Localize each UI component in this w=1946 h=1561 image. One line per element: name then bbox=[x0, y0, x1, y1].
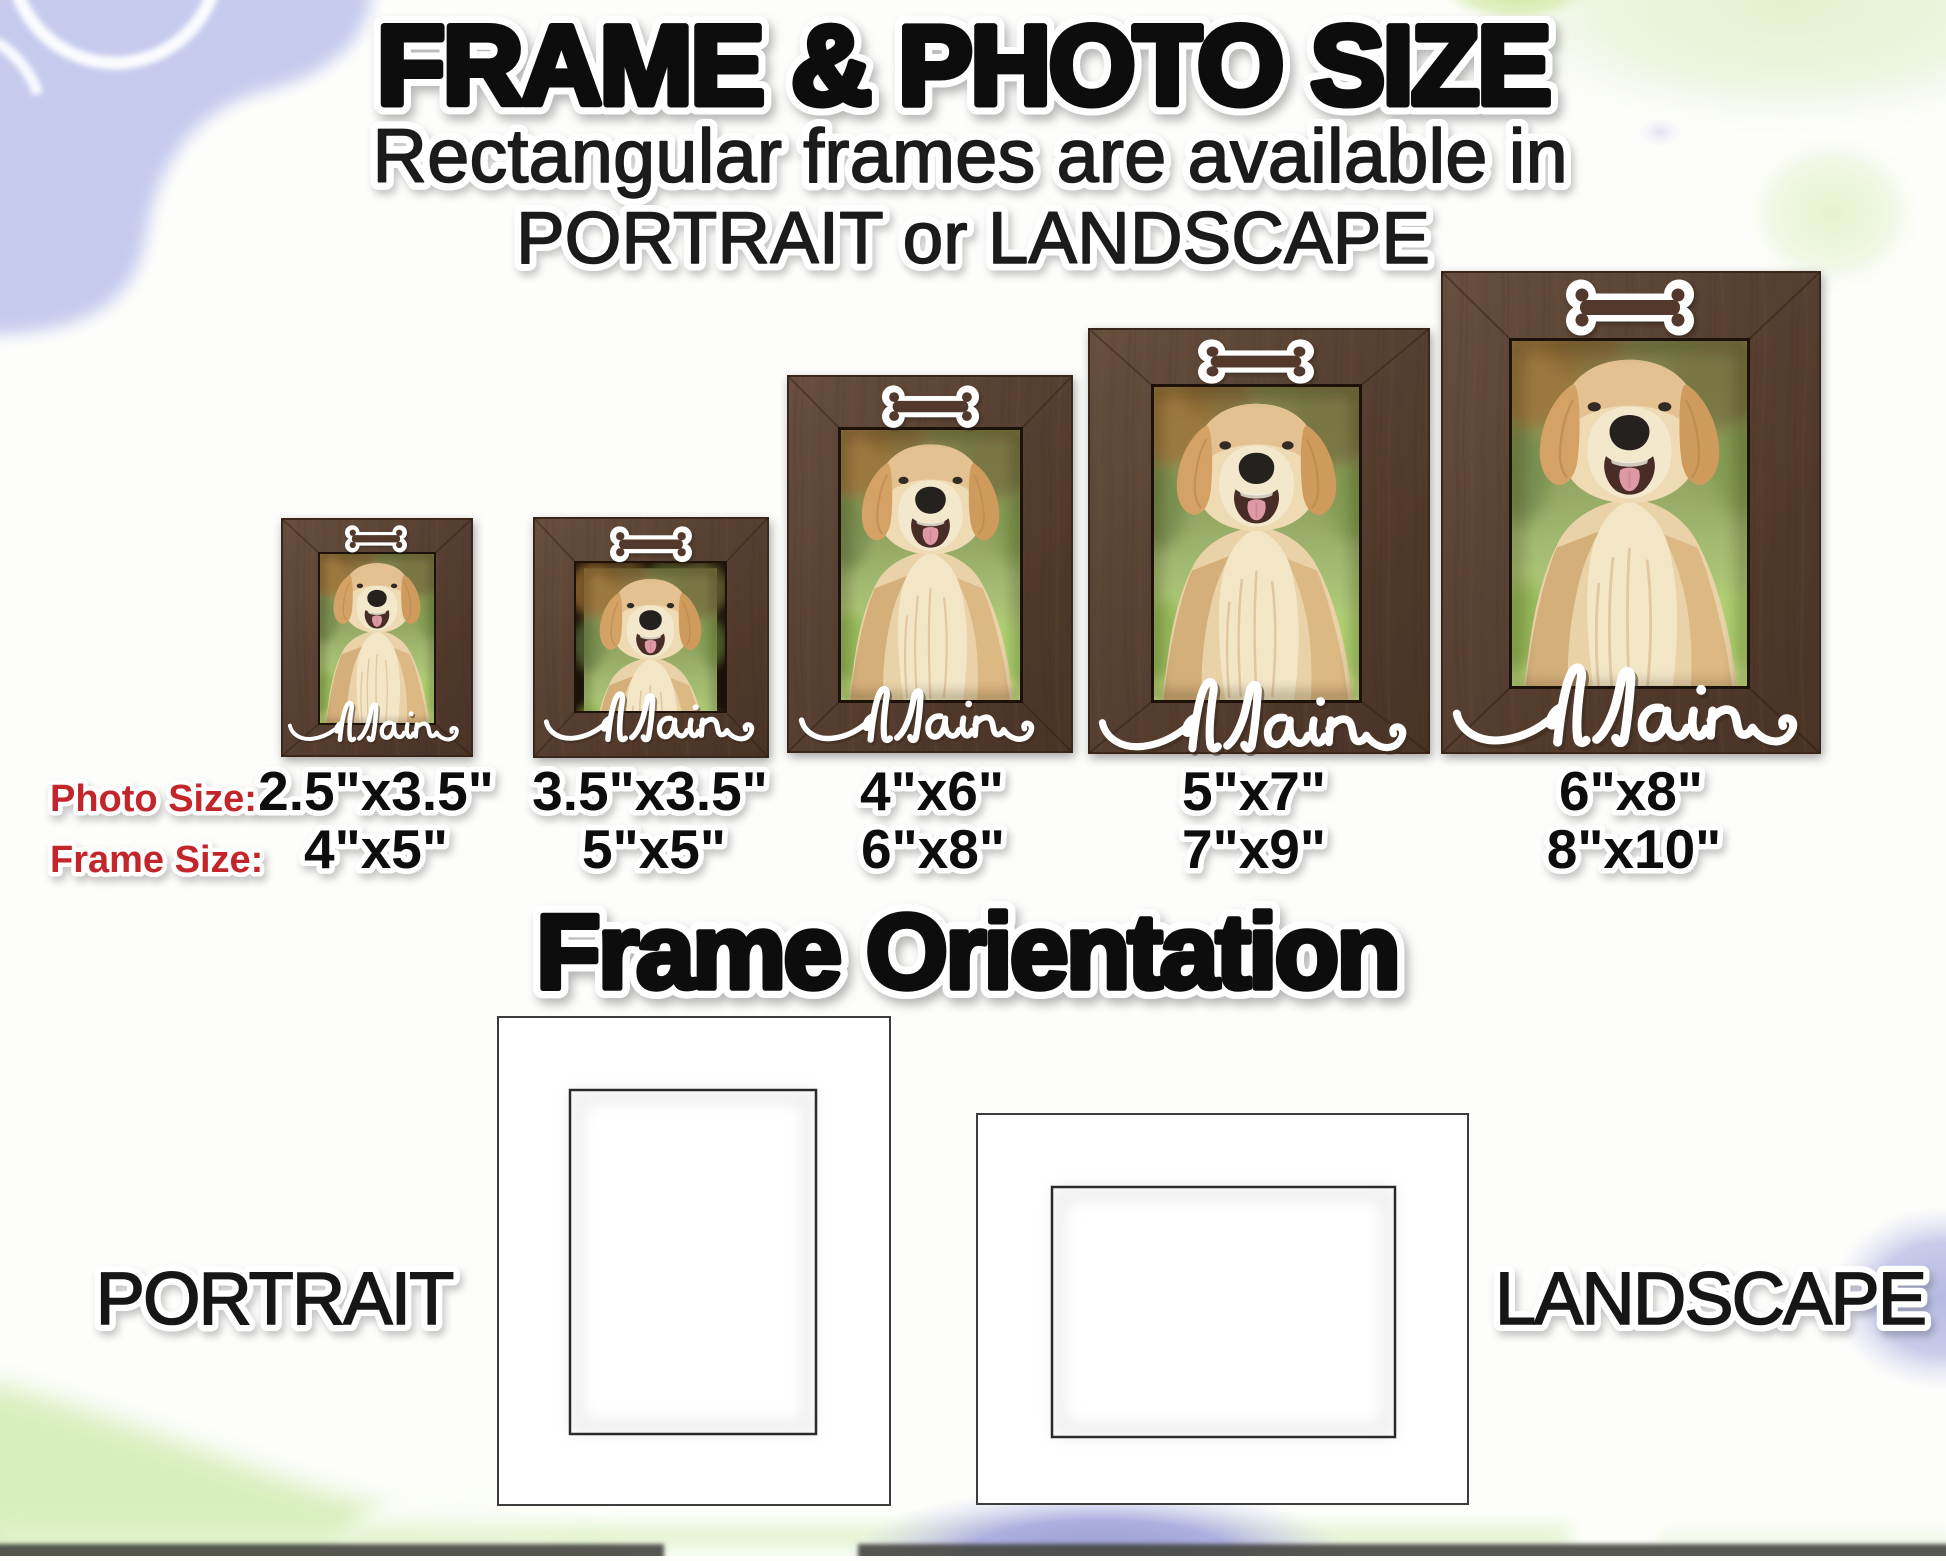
svg-text:LANDSCAPE: LANDSCAPE bbox=[1495, 1257, 1925, 1340]
svg-text:2.5"x3.5": 2.5"x3.5" bbox=[258, 760, 494, 822]
svg-text:PORTRAIT: PORTRAIT bbox=[96, 1257, 454, 1340]
svg-text:Rectangular frames are availab: Rectangular frames are available in bbox=[372, 114, 1568, 199]
svg-text:5"x7": 5"x7" bbox=[1182, 760, 1326, 822]
svg-text:8"x10": 8"x10" bbox=[1547, 818, 1722, 880]
svg-text:PORTRAIT or LANDSCAPE: PORTRAIT or LANDSCAPE bbox=[516, 198, 1430, 279]
svg-text:Frame Orientation: Frame Orientation bbox=[536, 893, 1398, 1011]
svg-text:4"x6": 4"x6" bbox=[860, 760, 1004, 822]
svg-text:Frame Size:: Frame Size: bbox=[50, 839, 263, 881]
svg-text:7"x9": 7"x9" bbox=[1182, 818, 1326, 880]
svg-text:4"x5": 4"x5" bbox=[304, 818, 448, 880]
svg-text:6"x8": 6"x8" bbox=[861, 818, 1005, 880]
svg-text:3.5"x3.5": 3.5"x3.5" bbox=[532, 760, 768, 822]
svg-text:Photo Size:: Photo Size: bbox=[50, 778, 257, 820]
svg-text:FRAME & PHOTO SIZE: FRAME & PHOTO SIZE bbox=[377, 3, 1550, 128]
svg-text:5"x5": 5"x5" bbox=[582, 818, 726, 880]
svg-text:6"x8": 6"x8" bbox=[1559, 760, 1703, 822]
